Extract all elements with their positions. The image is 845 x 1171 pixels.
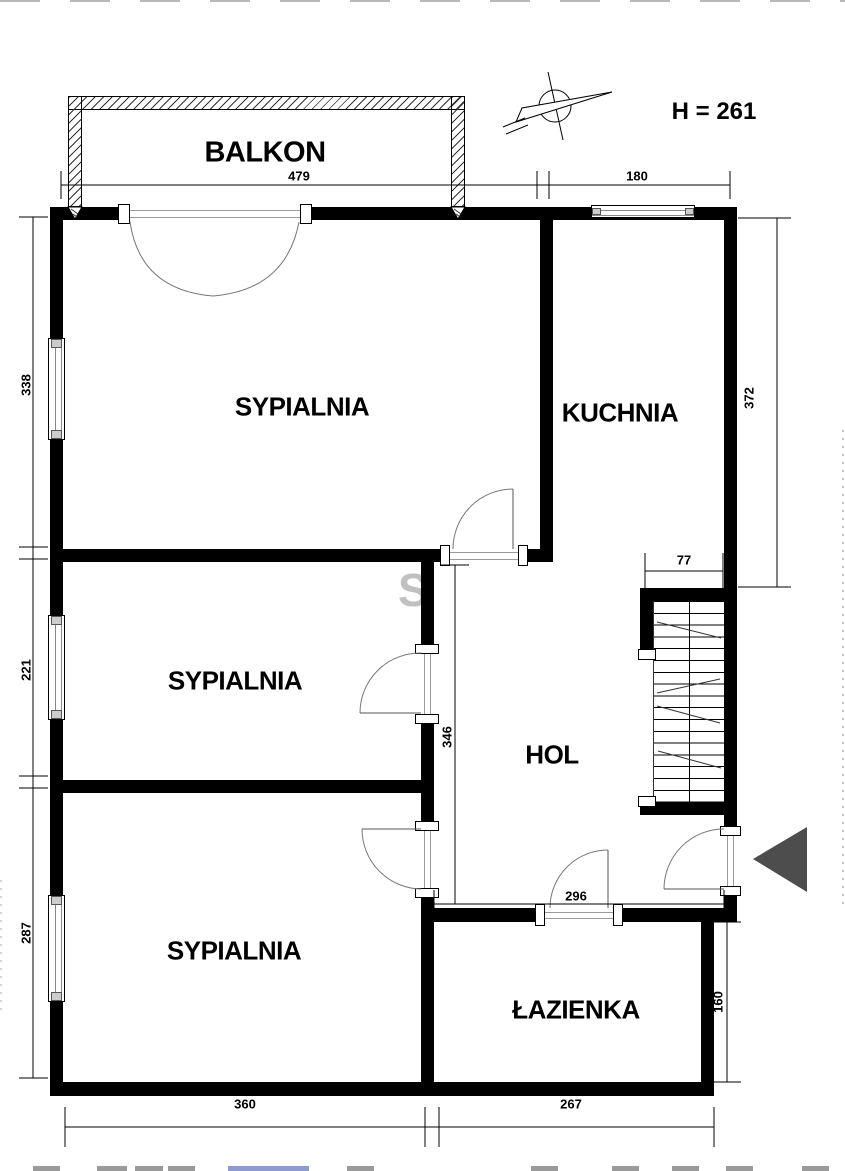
stairs-direction-lines bbox=[657, 622, 721, 768]
floor-plan: S bbox=[0, 0, 845, 1171]
dim-label-360: 360 bbox=[234, 1097, 256, 1112]
door-swing-arcs bbox=[130, 222, 724, 908]
dim-label-221: 221 bbox=[19, 659, 34, 681]
balcony-wall-tips bbox=[68, 207, 465, 219]
bedroom2-door-arc bbox=[360, 653, 421, 713]
dim-label-479: 479 bbox=[288, 169, 310, 184]
room-label-sypialnia-1: SYPIALNIA bbox=[235, 392, 369, 423]
bedroom1-door-arc bbox=[453, 489, 513, 549]
door-leaves bbox=[360, 489, 724, 908]
bedroom3-door-arc bbox=[362, 829, 421, 889]
room-label-sypialnia-3: SYPIALNIA bbox=[167, 936, 301, 967]
dim-label-338: 338 bbox=[19, 374, 34, 396]
room-label-sypialnia-2: SYPIALNIA bbox=[168, 666, 302, 697]
balcony-door-right-arc bbox=[213, 222, 299, 296]
entrance-arrow-icon bbox=[753, 827, 807, 892]
room-label-hol: HOL bbox=[525, 740, 578, 771]
dim-label-372: 372 bbox=[742, 387, 757, 409]
dim-label-346: 346 bbox=[440, 726, 455, 748]
north-arrow-icon bbox=[503, 72, 612, 140]
room-label-balkon: BALKON bbox=[204, 137, 325, 170]
dim-label-160: 160 bbox=[711, 991, 726, 1013]
entrance-door-arc bbox=[664, 829, 724, 889]
room-label-kuchnia: KUCHNIA bbox=[562, 398, 678, 429]
dim-label-180: 180 bbox=[626, 169, 648, 184]
ceiling-height-label: H = 261 bbox=[672, 98, 757, 126]
dim-label-77: 77 bbox=[677, 553, 691, 568]
dim-label-287: 287 bbox=[19, 922, 34, 944]
dim-label-296: 296 bbox=[565, 889, 587, 904]
dimension-lines bbox=[19, 171, 791, 1147]
balcony-door-left-arc bbox=[130, 222, 213, 296]
room-label-lazienka: ŁAZIENKA bbox=[512, 995, 639, 1026]
dim-label-267: 267 bbox=[560, 1097, 582, 1112]
